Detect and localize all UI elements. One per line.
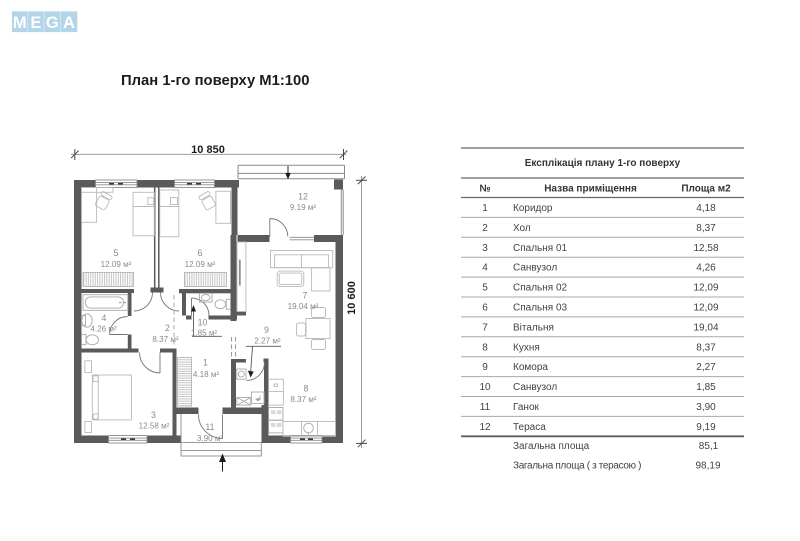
svg-text:1,85: 1,85 [696,382,716,393]
svg-text:12,09: 12,09 [693,303,718,314]
svg-text:19.04 м²: 19.04 м² [288,302,319,311]
svg-text:5: 5 [114,248,119,258]
svg-text:2: 2 [165,323,170,333]
svg-text:9.19 м²: 9.19 м² [290,203,317,212]
svg-text:12.09 м²: 12.09 м² [101,260,132,269]
svg-text:10: 10 [198,318,208,328]
svg-text:Загальна площа: Загальна площа [513,441,590,452]
svg-text:5: 5 [482,283,488,294]
svg-text:Ганок: Ганок [513,402,539,413]
svg-text:7: 7 [482,322,488,333]
svg-text:Тераса: Тераса [513,422,546,433]
svg-text:Санвузол: Санвузол [513,263,557,274]
svg-text:E: E [30,14,41,32]
svg-text:12: 12 [479,422,491,433]
svg-text:Коридор: Коридор [513,203,553,214]
svg-text:4.26 м²: 4.26 м² [90,325,117,334]
svg-text:8,37: 8,37 [696,223,716,234]
svg-text:2: 2 [482,223,488,234]
svg-text:Кухня: Кухня [513,342,540,353]
svg-text:План 1-го поверху М1:100: План 1-го поверху М1:100 [121,73,309,89]
svg-text:3: 3 [151,410,156,420]
svg-text:9,19: 9,19 [696,422,716,433]
svg-text:Комора: Комора [513,362,548,373]
svg-text:Спальня 01: Спальня 01 [513,243,568,254]
svg-text:Вітальня: Вітальня [513,322,554,333]
svg-text:1: 1 [482,203,488,214]
svg-text:85,1: 85,1 [699,441,719,452]
svg-text:4: 4 [482,263,488,274]
svg-text:2,27: 2,27 [696,362,716,373]
svg-text:Назва приміщення: Назва приміщення [544,184,637,195]
svg-text:A: A [63,14,75,32]
svg-text:8: 8 [482,342,488,353]
svg-text:1.85 м²: 1.85 м² [191,329,218,338]
svg-text:12.09 м²: 12.09 м² [185,260,216,269]
svg-text:Спальня 03: Спальня 03 [513,303,568,314]
svg-text:Площа м2: Площа м2 [681,184,731,195]
svg-text:4: 4 [102,313,107,323]
svg-text:12,58: 12,58 [693,243,718,254]
svg-text:12: 12 [298,192,308,202]
svg-text:2.27 м²: 2.27 м² [254,337,281,346]
svg-text:3,90: 3,90 [696,402,716,413]
svg-text:98,19: 98,19 [695,460,720,471]
svg-text:4,18: 4,18 [696,203,716,214]
svg-text:Загальна площа ( з терасою ): Загальна площа ( з терасою ) [513,460,641,471]
svg-text:6: 6 [198,248,203,258]
svg-text:4,26: 4,26 [696,263,716,274]
svg-text:M: M [13,14,27,32]
svg-text:6: 6 [482,303,488,314]
svg-text:3: 3 [482,243,488,254]
svg-text:G: G [46,14,59,32]
svg-text:8.37 м²: 8.37 м² [290,395,317,404]
svg-text:19,04: 19,04 [693,322,718,333]
svg-text:9: 9 [264,325,269,335]
svg-text:Експлікація плану 1-го поверху: Експлікація плану 1-го поверху [525,158,681,169]
svg-text:11: 11 [205,422,214,432]
svg-text:12,09: 12,09 [693,283,718,294]
svg-text:1: 1 [203,358,208,368]
svg-text:Санвузол: Санвузол [513,382,557,393]
svg-text:8,37: 8,37 [696,342,716,353]
svg-text:10 850: 10 850 [191,144,225,156]
svg-text:12.58 м²: 12.58 м² [139,422,170,431]
svg-text:Хол: Хол [513,223,531,234]
svg-text:3.90 м²: 3.90 м² [197,434,224,443]
svg-text:9: 9 [482,362,488,373]
svg-text:7: 7 [303,291,308,301]
svg-text:№: № [479,184,490,195]
svg-text:8.37 м²: 8.37 м² [152,335,179,344]
svg-text:10 600: 10 600 [346,281,358,315]
svg-text:8: 8 [304,384,309,394]
svg-text:10: 10 [479,382,491,393]
svg-text:Спальня 02: Спальня 02 [513,283,568,294]
svg-text:11: 11 [480,402,491,413]
svg-text:4.18 м²: 4.18 м² [193,370,220,379]
